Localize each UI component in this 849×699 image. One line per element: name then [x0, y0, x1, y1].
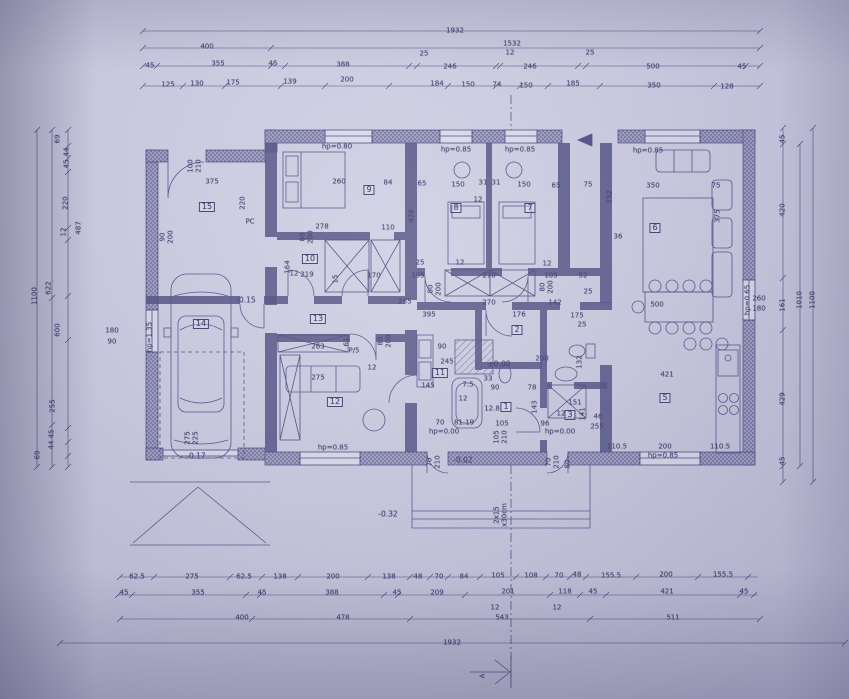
dim-label: 105 — [495, 421, 508, 428]
dim-label: 200 — [168, 230, 175, 243]
dim-label: 400 — [200, 44, 213, 51]
dim-label: 45 — [589, 589, 598, 596]
sill-height-label: hp=0.85 — [441, 147, 471, 154]
dim-label: 70 — [427, 458, 434, 467]
dim-label: 12 — [491, 605, 500, 612]
dim-label: 12 — [456, 260, 465, 267]
dim-label: 1932 — [446, 28, 464, 35]
dim-label: 105 — [494, 430, 501, 443]
dim-label: 332 — [607, 190, 614, 203]
dim-label: 260 — [332, 179, 345, 186]
dim-label: 200 — [535, 356, 548, 363]
dim-label: 84 — [384, 180, 393, 187]
dim-label: 110 — [381, 225, 394, 232]
dim-label: 246 — [443, 64, 456, 71]
dim-label: 25 — [586, 50, 595, 57]
room-tag: 10 — [302, 254, 318, 264]
dim-label: 210 — [502, 430, 509, 443]
sill-height-label: hp=0.85 — [633, 148, 663, 155]
dim-label: 200 — [659, 572, 672, 579]
dim-label: 429 — [780, 392, 787, 405]
dim-label: 220 — [63, 196, 70, 209]
dim-label: 155.5 — [601, 573, 621, 580]
dim-label: 45 — [49, 430, 56, 439]
dim-label: 31 — [479, 180, 488, 187]
dim-label: 170 — [367, 273, 380, 280]
room-tag: 1 — [500, 402, 511, 412]
dim-label: 275 — [311, 375, 324, 382]
level-label: -0.17 — [186, 452, 205, 460]
dim-label: 200 — [308, 230, 315, 243]
sill-height-label: hp=0.80 — [322, 144, 352, 151]
dim-label: 150 — [519, 83, 532, 90]
dim-label: 110.5 — [710, 444, 730, 451]
dim-label: 12.8 — [484, 406, 500, 413]
dim-label: 138 — [382, 574, 395, 581]
dim-label: 90 — [491, 385, 500, 392]
dim-label: 500 — [646, 64, 659, 71]
annotation-label: P/5 — [348, 348, 359, 355]
dim-label: 176 — [512, 312, 525, 319]
annotation-label: x30cm — [502, 503, 509, 527]
room-tag: 7 — [524, 203, 535, 213]
dim-label: 1010 — [797, 291, 804, 309]
dim-label: 25 — [584, 289, 593, 296]
dim-label: 96 — [541, 421, 550, 428]
dim-label: 84 — [460, 574, 469, 581]
dim-label: 1932 — [443, 640, 461, 647]
annotation-label: A — [480, 674, 487, 679]
dim-label: 80 — [300, 233, 307, 242]
dim-label: 81.19 — [454, 420, 474, 427]
dim-label: 78 — [528, 385, 537, 392]
dim-label: 90 — [108, 339, 117, 346]
dim-label: 80 — [378, 337, 385, 346]
dim-label: 150 — [461, 82, 474, 89]
sill-height-label: hp=1.35 — [147, 322, 154, 352]
dim-label: 80 — [428, 285, 435, 294]
dim-label: 45 — [393, 590, 402, 597]
dim-label: 45 — [258, 590, 267, 597]
dim-label: 52 — [579, 273, 588, 280]
dim-label: 44 — [64, 148, 71, 157]
dim-label: 69 — [55, 135, 62, 144]
dim-label: 478 — [409, 209, 416, 222]
dim-label: 100 — [188, 159, 195, 172]
dim-label: 132 — [577, 355, 584, 368]
dim-label: 90 — [160, 233, 167, 242]
dim-label: 275 — [185, 431, 192, 444]
dim-label: 139 — [283, 79, 296, 86]
dim-label: 201 — [501, 589, 514, 596]
dim-label: 130 — [190, 81, 203, 88]
dim-label: 478 — [336, 615, 349, 622]
dim-label: 25 — [420, 51, 429, 58]
dim-label: 70 — [435, 574, 444, 581]
dim-label: 500 — [650, 302, 663, 309]
dim-label: 61 — [344, 338, 351, 347]
dim-label: 350 — [647, 83, 660, 90]
room-tag: 8 — [450, 203, 461, 213]
dim-label: 487 — [76, 221, 83, 234]
dim-label: 375 — [205, 179, 218, 186]
dim-label: 12 — [553, 605, 562, 612]
dim-label: 355 — [191, 590, 204, 597]
dim-label: 74 — [493, 82, 502, 89]
dim-label: 75 — [584, 182, 593, 189]
dim-label: 142 — [548, 300, 561, 307]
dim-label: 200 — [340, 77, 353, 84]
sill-height-label: hp=0.85 — [648, 453, 678, 460]
dim-label: 185 — [566, 81, 579, 88]
dim-label: 210 — [554, 455, 561, 468]
level-label: ±0.00 — [488, 360, 511, 368]
dim-label: 12 — [368, 365, 377, 372]
dim-label: 48 — [414, 574, 423, 581]
dim-label: 25 — [578, 322, 587, 329]
dim-label: 355 — [211, 61, 224, 68]
dim-label: 7.5 — [462, 382, 473, 389]
dim-label: 70 — [546, 458, 553, 467]
annotation-label: 2x15 — [494, 506, 501, 524]
dim-label: 138 — [273, 574, 286, 581]
dim-label: 420 — [780, 203, 787, 216]
dim-label: 1100 — [32, 287, 39, 305]
room-tag: 11 — [432, 368, 448, 378]
dim-label: 75 — [712, 183, 721, 190]
dim-label: 200 — [436, 282, 443, 295]
dim-label: 219 — [300, 272, 313, 279]
floorplan-drawing: 1598761013141211213519324001532122525453… — [0, 0, 849, 699]
dim-label: 125 — [161, 82, 174, 89]
dim-label: 255 — [50, 399, 57, 412]
dim-label: 255 — [590, 424, 603, 431]
dim-label: 388 — [336, 62, 349, 69]
dim-label: 45 — [780, 457, 787, 466]
dim-label: 105 — [544, 273, 557, 280]
dim-label: 105 — [411, 273, 424, 280]
dim-label: 65 — [552, 183, 561, 190]
dim-label: 209 — [430, 590, 443, 597]
dim-label: 12 — [61, 228, 68, 237]
dim-label: 62.5 — [129, 574, 145, 581]
dim-label: 12 — [557, 411, 566, 418]
dim-label: 421 — [660, 372, 673, 379]
dim-label: 263 — [311, 344, 324, 351]
room-tag: 12 — [327, 397, 343, 407]
dim-label: 164 — [285, 260, 292, 273]
dim-label: 31 — [492, 180, 501, 187]
dim-label: 45 — [740, 589, 749, 596]
level-label: -0.15 — [236, 296, 255, 304]
dim-label: 44 — [49, 441, 56, 450]
dim-label: 70 — [555, 573, 564, 580]
dim-label: 543 — [495, 615, 508, 622]
dim-label: 270 — [482, 273, 495, 280]
dim-label: 255 — [398, 299, 411, 306]
dim-label: 45 — [120, 590, 129, 597]
level-label: -0.32 — [378, 510, 397, 518]
dim-label: 395 — [422, 312, 435, 319]
dim-label: 69 — [35, 451, 42, 460]
dim-label: 200 — [326, 574, 339, 581]
dim-label: 350 — [646, 183, 659, 190]
dim-label: 45 — [64, 160, 71, 169]
dim-label: 118 — [558, 589, 571, 596]
sill-height-label: hp=0.00 — [429, 429, 459, 436]
dim-label: 600 — [55, 323, 62, 336]
level-label: -0.02 — [453, 456, 472, 464]
room-tag: 15 — [199, 202, 215, 212]
dim-label: 105 — [491, 573, 504, 580]
dim-label: 12 — [459, 396, 468, 403]
dim-label: 245 — [440, 359, 453, 366]
dim-label: 246 — [523, 64, 536, 71]
sill-height-label: hp=0.85 — [505, 147, 535, 154]
dim-label: 110.5 — [607, 444, 627, 451]
dim-label: 375 — [715, 209, 722, 222]
dim-label: 70 — [436, 420, 445, 427]
dim-label: 65 — [418, 181, 427, 188]
dim-label: 150 — [517, 182, 530, 189]
room-tag: 2 — [511, 325, 522, 335]
dim-label: 200 — [386, 334, 393, 347]
dim-label: 275 — [185, 574, 198, 581]
dim-label: 80 — [565, 460, 572, 469]
dim-label: 62.5 — [236, 574, 252, 581]
dim-label: 180 — [105, 328, 118, 335]
sill-height-label: hp=0.65 — [745, 285, 752, 315]
dim-label: 33 — [484, 376, 493, 383]
room-tag: 3 — [564, 410, 575, 420]
dim-label: 25 — [416, 260, 425, 267]
dim-label: 46 — [594, 414, 603, 421]
dim-label: 184 — [430, 81, 443, 88]
dim-label: 12 — [506, 50, 515, 57]
dim-label: 180 — [752, 306, 765, 313]
annotation-label: PC — [245, 219, 254, 226]
dim-label: 421 — [660, 589, 673, 596]
dim-label: 278 — [315, 224, 328, 231]
plan-labels: 1598761013141211213519324001532122525453… — [0, 0, 849, 699]
room-tag: 9 — [363, 185, 374, 195]
dim-label: 80 — [540, 283, 547, 292]
dim-label: 151 — [568, 400, 581, 407]
dim-label: 141 — [580, 407, 587, 420]
dim-label: 175 — [570, 313, 583, 320]
dim-label: 400 — [235, 615, 248, 622]
dim-label: 128 — [720, 84, 733, 91]
room-tag: 13 — [310, 314, 326, 324]
dim-label: 12 — [474, 197, 483, 204]
dim-label: 220 — [240, 196, 247, 209]
dim-label: 155.5 — [713, 572, 733, 579]
room-tag: 6 — [649, 223, 660, 233]
dim-label: 150 — [451, 182, 464, 189]
dim-label: 210 — [196, 159, 203, 172]
dim-label: 145 — [421, 383, 434, 390]
dim-label: 1532 — [503, 41, 521, 48]
dim-label: 12 — [543, 261, 552, 268]
dim-label: 200 — [548, 280, 555, 293]
dim-label: 45 — [780, 135, 787, 144]
dim-label: 200 — [658, 444, 671, 451]
dim-label: 48 — [573, 572, 582, 579]
dim-label: 45 — [738, 64, 747, 71]
floorplan-photo: 1598761013141211213519324001532122525453… — [0, 0, 849, 699]
dim-label: 45 — [146, 63, 155, 70]
dim-label: 15 — [333, 275, 340, 284]
dim-label: 225 — [193, 431, 200, 444]
dim-label: 260 — [752, 296, 765, 303]
sill-height-label: hp=0.00 — [545, 429, 575, 436]
dim-label: 143 — [532, 400, 539, 413]
dim-label: 45 — [269, 61, 278, 68]
dim-label: 210 — [435, 455, 442, 468]
dim-label: 108 — [524, 573, 537, 580]
dim-label: 270 — [482, 300, 495, 307]
dim-label: 90 — [438, 344, 447, 351]
sill-height-label: hp=0.85 — [318, 445, 348, 452]
dim-label: 622 — [46, 281, 53, 294]
dim-label: 511 — [666, 615, 679, 622]
dim-label: 36 — [614, 234, 623, 241]
dim-label: 1100 — [810, 291, 817, 309]
room-tag: 5 — [659, 393, 670, 403]
dim-label: 388 — [325, 590, 338, 597]
dim-label: 161 — [780, 298, 787, 311]
dim-label: 175 — [226, 80, 239, 87]
room-tag: 14 — [193, 319, 209, 329]
